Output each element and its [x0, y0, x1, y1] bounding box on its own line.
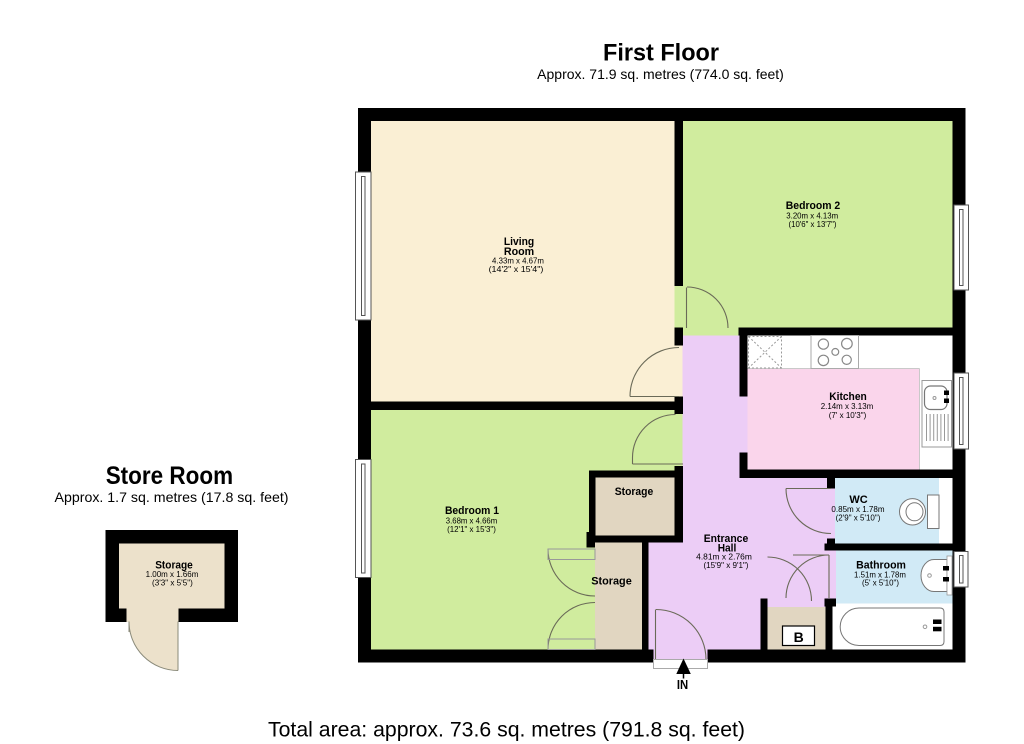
svg-text:(2'9" x 5'10"): (2'9" x 5'10")	[836, 513, 881, 523]
svg-text:(5' x 5'10"): (5' x 5'10")	[862, 578, 899, 588]
svg-text:Storage: Storage	[615, 486, 654, 498]
svg-text:Approx. 71.9 sq. metres (774.0: Approx. 71.9 sq. metres (774.0 sq. feet)	[537, 66, 784, 82]
svg-text:(14'2" x 15'4"): (14'2" x 15'4")	[489, 264, 544, 274]
svg-text:Approx. 1.7 sq. metres (17.8 s: Approx. 1.7 sq. metres (17.8 sq. feet)	[55, 489, 289, 505]
svg-text:Storage: Storage	[591, 576, 632, 588]
svg-text:B: B	[794, 629, 804, 645]
svg-text:(12'1" x 15'3"): (12'1" x 15'3")	[447, 524, 496, 534]
svg-text:First Floor: First Floor	[603, 40, 719, 67]
svg-text:(3'3" x 5'5"): (3'3" x 5'5")	[152, 578, 193, 588]
svg-text:Total area: approx. 73.6 sq. m: Total area: approx. 73.6 sq. metres (791…	[268, 718, 745, 742]
svg-text:IN: IN	[677, 677, 688, 692]
svg-text:(10'6" x 13'7"): (10'6" x 13'7")	[789, 219, 837, 229]
svg-text:(15'9" x 9'1"): (15'9" x 9'1")	[704, 560, 749, 570]
svg-text:(7' x 10'3"): (7' x 10'3")	[829, 410, 867, 420]
svg-text:Store Room: Store Room	[106, 462, 233, 490]
